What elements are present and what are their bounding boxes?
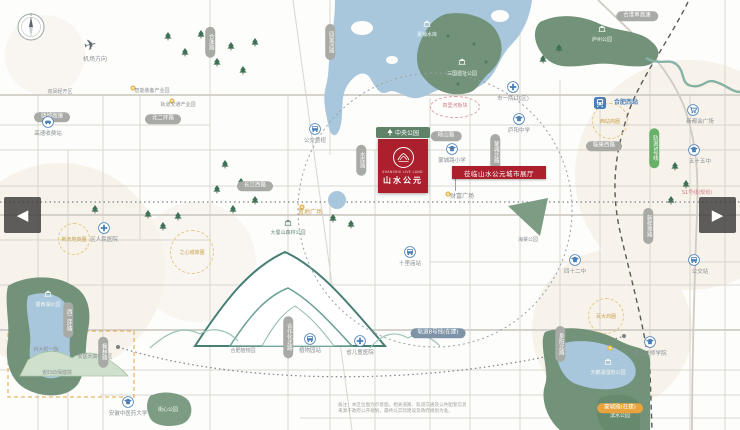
poi-hospital-icon (98, 222, 110, 234)
poi-school-icon (446, 143, 458, 155)
road-name-pill: 轨道8号线(在建) (411, 328, 466, 338)
poi-cart-icon (687, 104, 699, 116)
poi-bus-icon (309, 123, 321, 135)
pavilion-icon (604, 358, 612, 365)
pavilion-icon (44, 290, 52, 297)
poi-label: 四十二中 (564, 267, 586, 275)
map-label: 财富广场 (450, 194, 474, 201)
poi-school-icon (569, 254, 581, 266)
poi-label: 区人民医院 (90, 235, 118, 243)
map-label: 合肥植物园 (230, 349, 255, 355)
park-label: 大蜀山森林公园 (270, 231, 305, 237)
poi-label: 新都会广场 (686, 117, 714, 125)
train-station-icon (594, 97, 607, 110)
business-circle: 之心城商圈 (170, 230, 214, 274)
map-label: 智能装备产业园 (134, 89, 169, 95)
poi-car-icon (42, 116, 54, 128)
map-label: 置地广场 (298, 210, 322, 217)
business-circle: 百大商圈 (588, 298, 624, 334)
road-name-pill-vertical: 阜阳北路 (555, 326, 565, 362)
poi-label: 建工技师学院 (633, 349, 666, 357)
station-label: 合肥西站 (614, 100, 638, 107)
poi-bus-icon (304, 333, 316, 345)
poi-label: 安徽中医药大学 (109, 409, 148, 417)
road-name-pill-vertical: 四里河路 (325, 24, 335, 60)
district-ellipse: 四里河板块 (430, 96, 480, 118)
tree-icon (387, 129, 393, 136)
project-name-cn: 山水公元 (383, 175, 423, 186)
park-label: 街心公园 (158, 408, 178, 414)
map-label: 轨道交通产业园 (160, 103, 195, 109)
poi-school-icon (644, 336, 656, 348)
road-name-pill-vertical: 合作化北路 (283, 316, 293, 358)
park-label: 天鹅湖湿地公园 (590, 371, 625, 377)
triangle-park (508, 198, 548, 236)
park-label: 三国遗址公园 (447, 72, 477, 78)
prev-image-button[interactable]: ◀ (4, 197, 41, 233)
poi-school-icon (688, 144, 700, 156)
poi-label: 市一院(北区) (497, 94, 529, 102)
project-logo-icon (393, 147, 414, 168)
poi-label: 庐阳中学 (508, 126, 530, 134)
poi-label: 植物园站 (299, 346, 321, 354)
map-base-art (0, 0, 740, 430)
road-name-pill-vertical: 水库路 (356, 145, 366, 176)
park-label: 蜀西湖公园 (35, 303, 60, 309)
poi-label: 五十五中 (689, 157, 711, 165)
map-label: S1号线(规划) (682, 191, 712, 197)
poi-bus-icon (688, 254, 700, 266)
poi-school-icon (513, 113, 525, 125)
next-image-button[interactable]: ▶ (699, 197, 736, 233)
poi-label: 省儿童医院 (346, 348, 374, 356)
map-label: 省妇幼保健院 (42, 371, 72, 377)
poi-label: 高速收费站 (34, 129, 62, 137)
road-name-pill-vertical: 新蚌埠路 (643, 208, 653, 244)
banner-leader-line (455, 179, 456, 191)
poi-bus-icon (404, 246, 416, 258)
business-circle: 新天地商圈 (58, 223, 90, 255)
road-name-pill: 临泉西路 (586, 141, 622, 151)
road-name-pill-vertical: 枫林路 (98, 337, 108, 368)
project-marker[interactable]: SHANSHUI LIVE LAND 山水公元 (378, 139, 428, 193)
poi-hospital-icon (507, 81, 519, 93)
road-name-pill: 北二环路 (145, 114, 181, 124)
road-name-pill: 砀山路 (431, 131, 462, 141)
park-label: 滨水公园 (610, 414, 630, 420)
pavilion-icon (284, 219, 292, 226)
road-name-pill-vertical: 轨道5号线 (649, 128, 659, 168)
exhibition-hall-banner[interactable]: 莅临山水公元城市展厅 (452, 166, 546, 179)
map-label: 科大附一院 (33, 348, 58, 354)
poi-hospital-icon (354, 335, 366, 347)
airport-direction-label: 机场方向 (83, 54, 107, 63)
pavilion-icon (598, 25, 606, 32)
poi-label: 公交枢纽 (304, 136, 326, 144)
road-name-pill: 蒙城路(在建) (597, 403, 643, 413)
map-label: 海棠公园 (518, 238, 538, 244)
poi-label: 十里庙站 (399, 259, 421, 267)
road-name-pill-vertical: 合淮路 (205, 27, 215, 58)
map-label: 双凤经开区 (47, 90, 72, 96)
location-map: ✈ 机场方向 中央公园 SHANSHUI LIVE LAND 山水公元 莅临山水… (0, 0, 740, 430)
pavilion-icon (423, 20, 431, 27)
compass-icon (16, 12, 46, 46)
road-name-pill: 合淮阜高速 (616, 11, 658, 21)
park-label: 董铺水库 (417, 33, 437, 39)
central-park-pill: 中央公园 (376, 127, 430, 138)
pavilion-icon (458, 58, 466, 65)
project-name-en: SHANSHUI LIVE LAND (383, 170, 424, 174)
map-disclaimer: 备注：本区位图为示意图，相关道路、轨道交通及公共配套信息 来源于政府公开规划，最… (338, 403, 488, 415)
road-name-pill: 长江西路 (237, 181, 273, 191)
poi-label: 公交站 (692, 267, 709, 275)
poi-school-icon (122, 396, 134, 408)
poi-label: 蒙城路小学 (438, 156, 466, 164)
road-name-pill-vertical: 西二环路 (63, 302, 73, 338)
road-name-pill-vertical: 蒙城北路 (490, 134, 500, 170)
park-label: 庐州公园 (592, 38, 612, 44)
